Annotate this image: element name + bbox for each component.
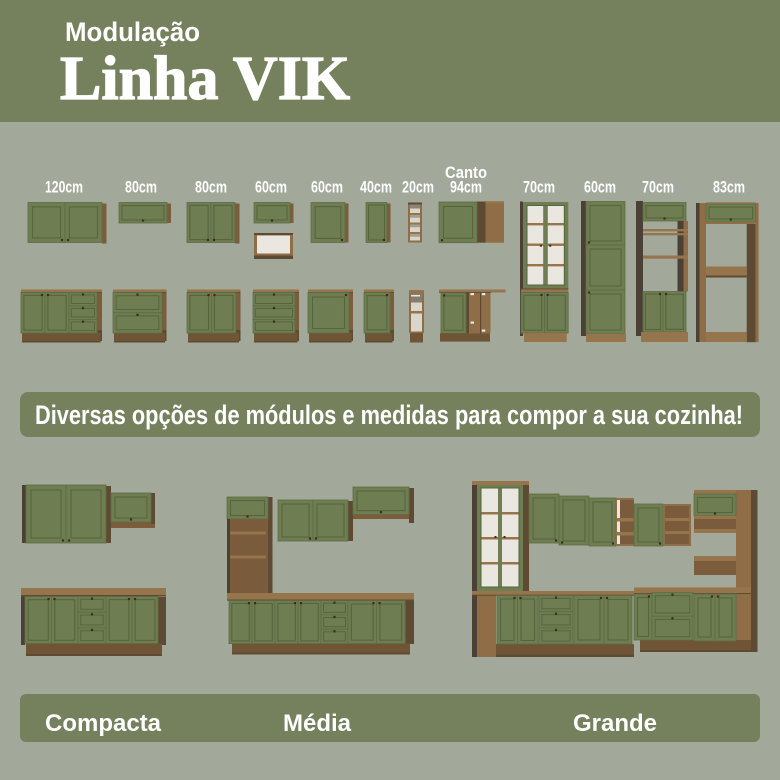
svg-text:60cm: 60cm: [311, 178, 343, 196]
svg-text:70cm: 70cm: [642, 178, 674, 196]
svg-text:Compacta: Compacta: [45, 710, 162, 737]
svg-text:80cm: 80cm: [195, 178, 227, 196]
svg-text:80cm: 80cm: [125, 178, 157, 196]
svg-text:83cm: 83cm: [713, 178, 745, 196]
svg-text:Linha VIK: Linha VIK: [60, 45, 350, 113]
svg-text:70cm: 70cm: [523, 178, 555, 196]
svg-text:60cm: 60cm: [584, 178, 616, 196]
svg-text:Média: Média: [283, 710, 352, 737]
svg-text:Grande: Grande: [573, 710, 657, 737]
svg-text:20cm: 20cm: [402, 178, 434, 196]
svg-text:120cm: 120cm: [45, 178, 83, 196]
svg-text:60cm: 60cm: [255, 178, 287, 196]
svg-text:Diversas opções de módulos e m: Diversas opções de módulos e medidas par…: [35, 400, 743, 430]
svg-text:94cm: 94cm: [450, 178, 482, 196]
svg-text:40cm: 40cm: [360, 178, 392, 196]
svg-text:Modulação: Modulação: [65, 17, 200, 47]
